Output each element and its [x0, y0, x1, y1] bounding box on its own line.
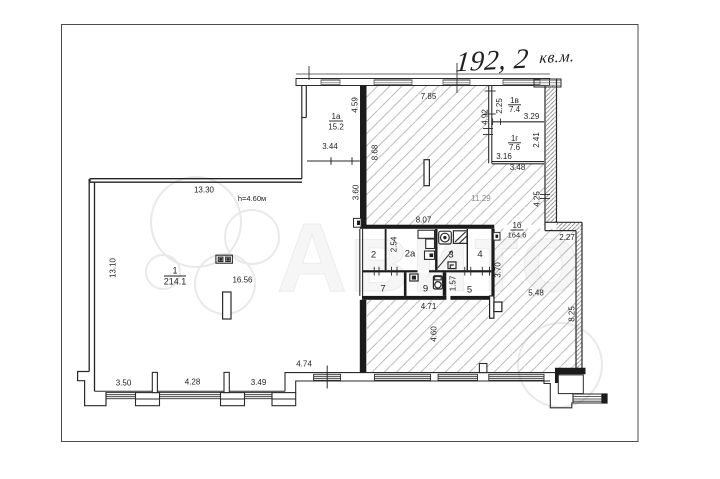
svg-text:192, 2: 192, 2 — [454, 44, 530, 79]
svg-text:4.92: 4.92 — [481, 109, 490, 125]
svg-text:1б: 1б — [512, 221, 521, 230]
svg-text:2.41: 2.41 — [532, 132, 541, 148]
svg-text:8.07: 8.07 — [416, 216, 432, 225]
svg-text:2.54: 2.54 — [390, 236, 399, 252]
svg-text:1: 1 — [172, 266, 177, 276]
svg-text:3.49: 3.49 — [251, 378, 267, 387]
svg-text:7.4: 7.4 — [509, 105, 521, 114]
svg-text:7: 7 — [380, 284, 385, 295]
svg-text:3.50: 3.50 — [116, 379, 132, 388]
svg-text:3.60: 3.60 — [352, 184, 361, 200]
svg-text:13.10: 13.10 — [109, 257, 118, 278]
svg-text:9: 9 — [423, 284, 428, 295]
svg-text:1а: 1а — [332, 112, 341, 121]
svg-text:214.1: 214.1 — [164, 277, 187, 287]
svg-text:8.25: 8.25 — [568, 306, 577, 322]
svg-text:4.59: 4.59 — [351, 97, 360, 113]
svg-text:16.56: 16.56 — [232, 276, 253, 285]
svg-text:5.48: 5.48 — [528, 289, 544, 298]
svg-text:3.16: 3.16 — [496, 152, 512, 161]
svg-text:2.25: 2.25 — [495, 98, 504, 114]
svg-text:2а: 2а — [405, 249, 416, 260]
svg-text:15.2: 15.2 — [328, 123, 344, 132]
svg-text:3.70: 3.70 — [494, 262, 503, 278]
svg-text:4.71: 4.71 — [421, 302, 437, 311]
svg-text:4.25: 4.25 — [533, 191, 542, 207]
svg-text:164.6: 164.6 — [508, 231, 527, 240]
svg-text:13.30: 13.30 — [194, 186, 215, 195]
svg-text:1.57: 1.57 — [449, 275, 458, 291]
svg-text:7.6: 7.6 — [509, 143, 521, 152]
svg-text:3.48: 3.48 — [510, 163, 526, 172]
svg-text:8.68: 8.68 — [371, 144, 380, 160]
svg-text:2: 2 — [371, 250, 376, 261]
svg-text:4.60: 4.60 — [430, 326, 439, 342]
svg-text:4.74: 4.74 — [296, 360, 312, 369]
svg-text:3.29: 3.29 — [524, 112, 540, 121]
svg-text:h=4.60м: h=4.60м — [238, 194, 266, 203]
svg-text:3: 3 — [448, 250, 453, 261]
svg-text:4: 4 — [477, 249, 482, 260]
svg-text:1в: 1в — [510, 96, 519, 105]
svg-text:5: 5 — [467, 285, 472, 296]
svg-text:3.44: 3.44 — [322, 142, 338, 151]
svg-text:4.28: 4.28 — [185, 378, 201, 387]
svg-text:7.85: 7.85 — [421, 92, 437, 101]
svg-text:1г: 1г — [511, 134, 518, 143]
svg-text:11.29: 11.29 — [471, 194, 491, 203]
svg-text:2.27: 2.27 — [559, 233, 575, 242]
svg-text:кв.м.: кв.м. — [539, 48, 576, 67]
